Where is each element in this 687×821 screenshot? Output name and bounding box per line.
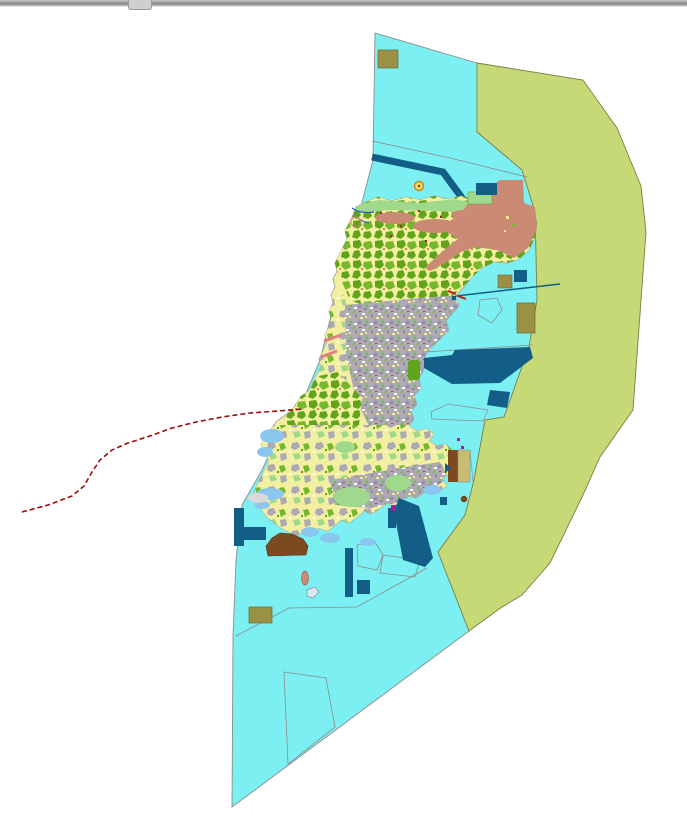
- islet-brown-dot: [461, 496, 467, 502]
- park-patch-east: [408, 360, 420, 380]
- offshore-plot-east-1: [498, 275, 512, 288]
- harbor-dot-se: [440, 497, 447, 505]
- offshore-plot-south: [249, 607, 272, 623]
- magenta-marker-e2: [457, 438, 460, 441]
- offshore-plot-east-3: [517, 303, 535, 333]
- splitter-handle[interactable]: [128, 0, 152, 10]
- pier-south-1: [345, 548, 353, 597]
- offshore-plot-east-2: [514, 270, 527, 282]
- map-canvas[interactable]: [0, 0, 687, 821]
- port-zone-rect-north: [476, 183, 497, 195]
- pier-south-2: [357, 580, 370, 594]
- green-patch-s1: [334, 487, 370, 507]
- lighthouse-dot: [418, 185, 420, 187]
- offshore-plot-north: [378, 50, 398, 68]
- window-top-edge: [0, 0, 687, 7]
- magenta-marker-e1: [461, 446, 464, 449]
- green-patch-s4: [335, 441, 355, 453]
- map-viewport: [0, 0, 687, 821]
- islet-salmon: [302, 571, 309, 585]
- green-patch-s2: [385, 475, 411, 491]
- magenta-marker-se: [391, 505, 396, 511]
- harbor-plot-small: [487, 390, 510, 408]
- reclaimed-block-east: [445, 450, 473, 482]
